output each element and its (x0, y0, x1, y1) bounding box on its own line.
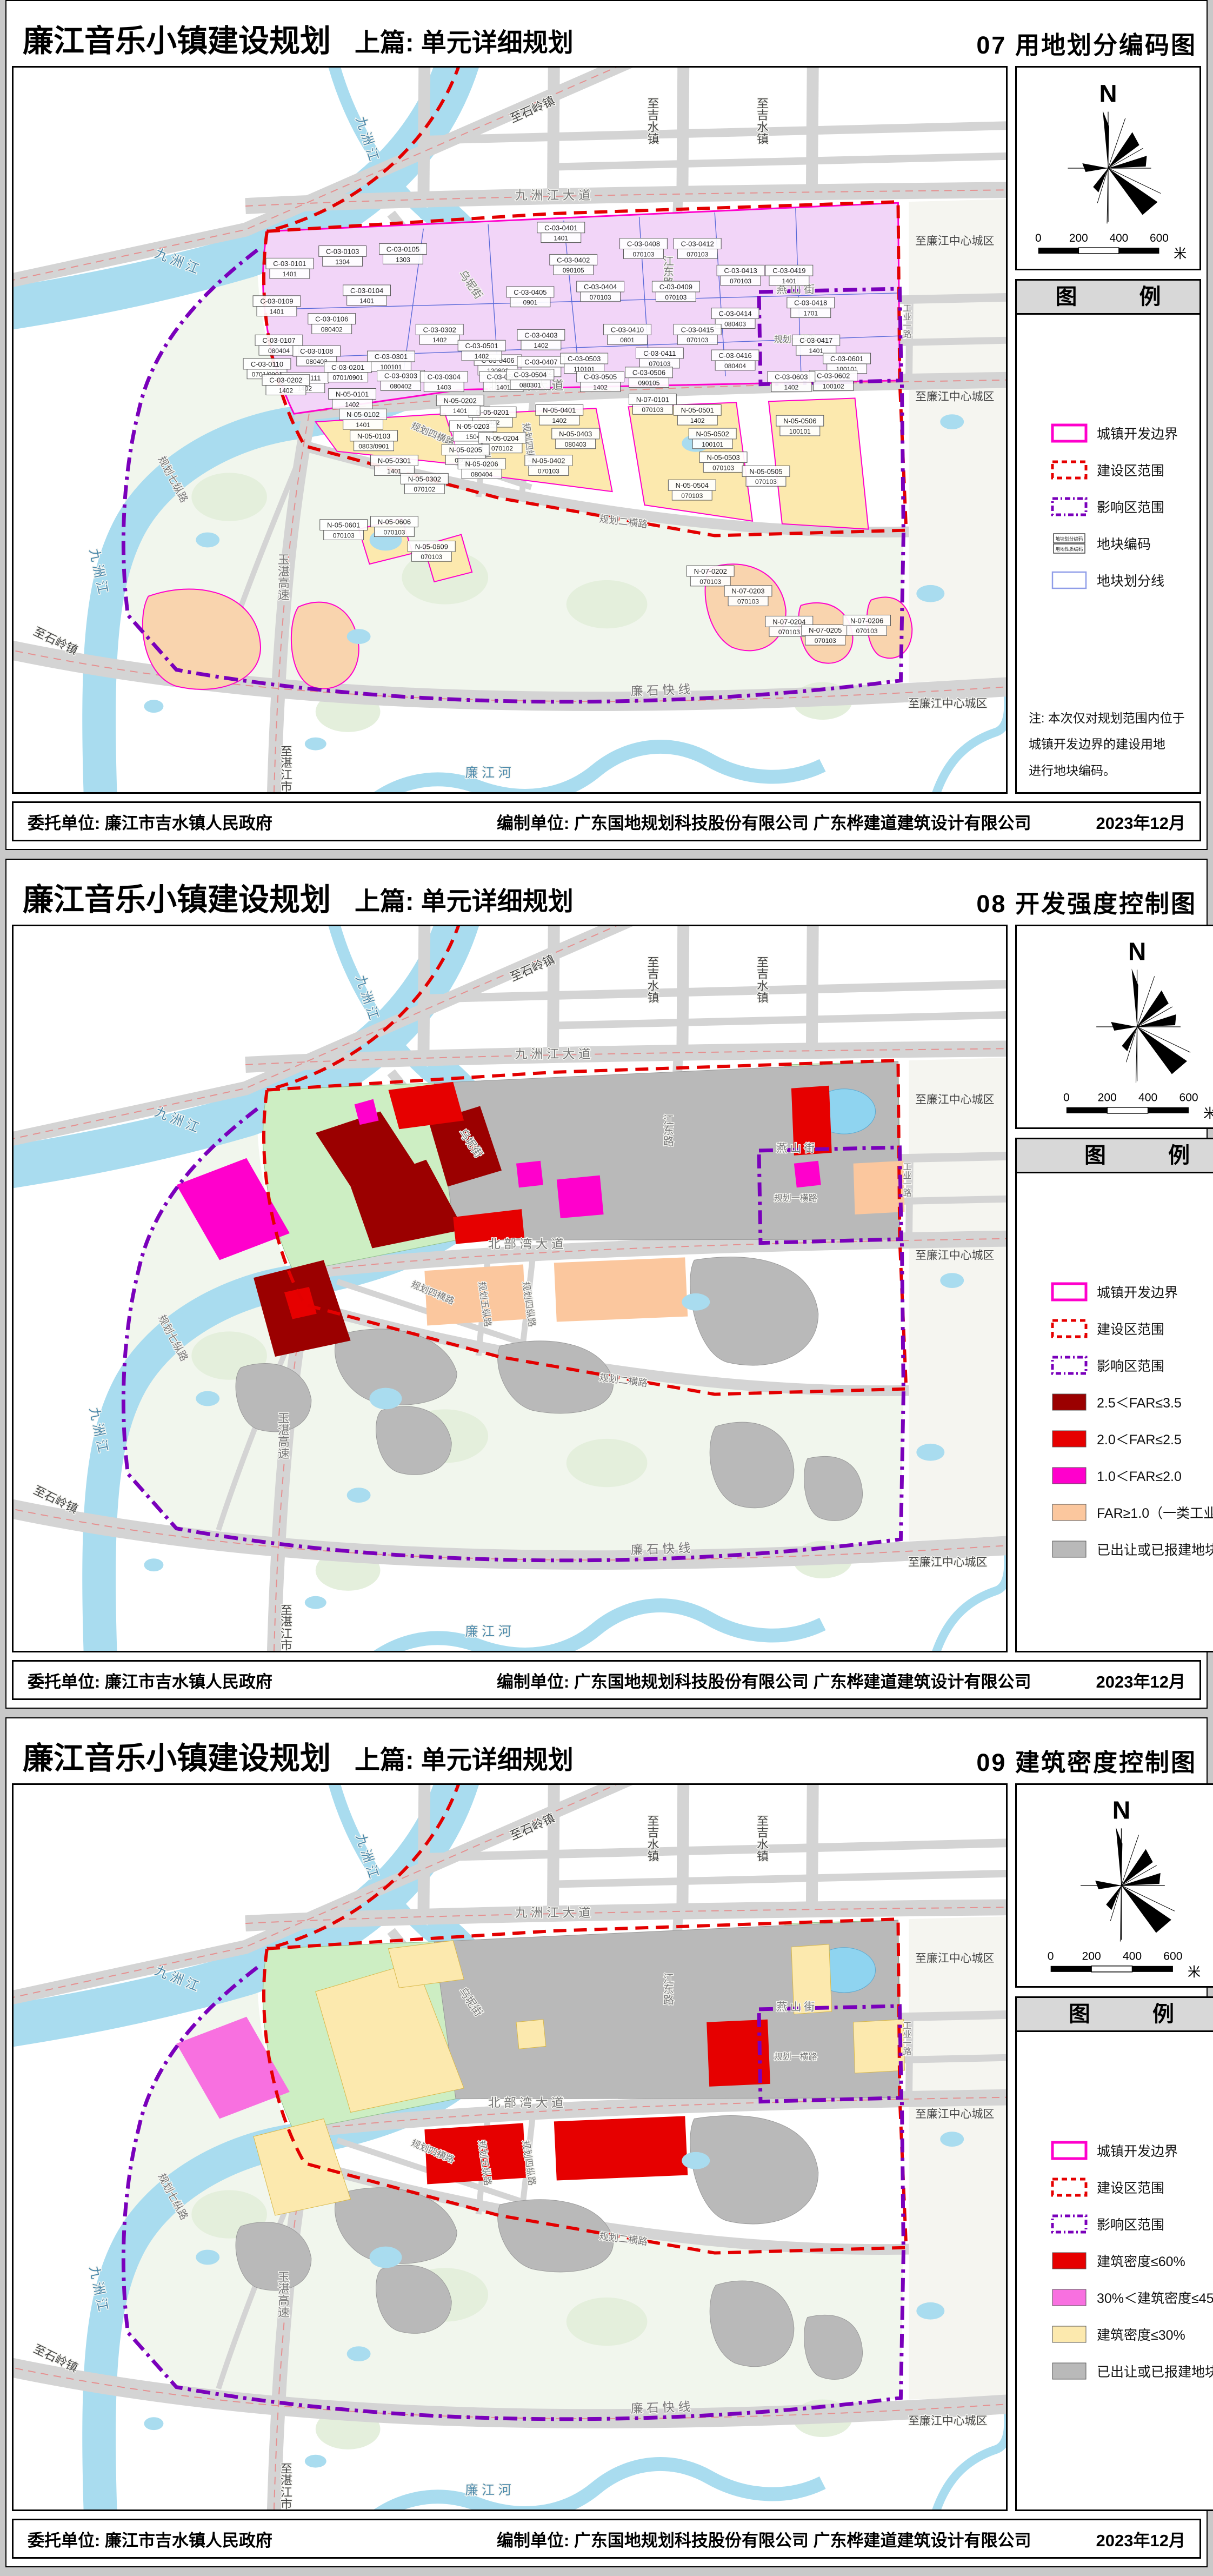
planning-map-09: 九 洲 江九 洲 江九 洲 江廉 江 河九 洲 江 大 道北 部 湾 大 道廉 … (14, 1785, 1006, 2509)
page-title: 廉江音乐小镇建设规划上篇: 单元详细规划 (23, 875, 574, 919)
svg-text:玉湛高速: 玉湛高速 (276, 2270, 290, 2318)
svg-text:070103: 070103 (642, 406, 663, 414)
planning-map-07: 九 洲 江九 洲 江九 洲 江廉 江 河九 洲 江 大 道北 部 湾 大 道廉 … (14, 68, 1006, 792)
svg-text:1401: 1401 (809, 347, 823, 355)
svg-text:N-05-0206: N-05-0206 (465, 460, 498, 468)
legend-swatch-icon (1050, 495, 1088, 519)
svg-text:工业一路: 工业一路 (902, 304, 911, 338)
svg-text:廉 石 快 线: 廉 石 快 线 (630, 1541, 691, 1557)
parcel-code: C-03-04100801 (604, 324, 651, 344)
parcel-code: C-03-02010701/0901 (324, 362, 372, 382)
legend-label: FAR≥1.0（一类工业用地） (1097, 1503, 1213, 1522)
parcel-code: C-03-03041403 (420, 371, 468, 392)
sheet-name: 用地划分编码图 (1015, 31, 1197, 59)
svg-text:1701: 1701 (803, 310, 818, 317)
svg-text:200: 200 (1082, 1950, 1101, 1963)
svg-text:070103: 070103 (737, 598, 759, 606)
sheet-number: 08 (976, 890, 1007, 918)
svg-text:0801: 0801 (620, 336, 635, 344)
svg-text:C-03-0416: C-03-0416 (718, 351, 751, 360)
svg-text:至廉江中心城区: 至廉江中心城区 (915, 1094, 995, 1106)
wind-rose-icon: N0200400600米 (1017, 926, 1213, 1127)
svg-text:070103: 070103 (755, 478, 777, 486)
svg-text:C-03-0402: C-03-0402 (557, 256, 590, 264)
svg-text:1402: 1402 (690, 417, 705, 424)
svg-text:N-07-0203: N-07-0203 (731, 587, 764, 595)
svg-text:080403: 080403 (724, 320, 746, 328)
svg-text:1401: 1401 (356, 421, 370, 429)
svg-text:070103: 070103 (590, 294, 611, 301)
svg-text:C-03-0407: C-03-0407 (524, 358, 557, 366)
svg-text:070103: 070103 (856, 627, 878, 635)
svg-text:070103: 070103 (778, 628, 800, 636)
parcel-code: N-05-04011402 (536, 404, 583, 425)
parcel-code: C-03-0602100102 (810, 370, 857, 391)
svg-text:N-05-0402: N-05-0402 (532, 457, 565, 465)
svg-text:1403: 1403 (437, 384, 451, 391)
svg-text:用地性质编码: 用地性质编码 (1055, 547, 1083, 552)
svg-text:至吉水镇: 至吉水镇 (755, 1815, 769, 1862)
legend-swatch-icon (1050, 1427, 1088, 1451)
parcel-code: N-05-0206080404 (458, 459, 505, 479)
svg-text:600: 600 (1179, 1092, 1198, 1104)
svg-text:C-03-0403: C-03-0403 (524, 331, 557, 339)
svg-text:C-03-0303: C-03-0303 (384, 372, 417, 380)
svg-text:070103: 070103 (665, 294, 687, 301)
svg-text:1401: 1401 (554, 235, 568, 242)
legend-item: 地块划分线 (1050, 562, 1199, 599)
legend-label: 建筑密度≤30% (1097, 2325, 1185, 2344)
svg-text:北 部 湾 大 道: 北 部 湾 大 道 (488, 1237, 564, 1251)
svg-text:090105: 090105 (638, 380, 659, 387)
svg-text:070103: 070103 (649, 360, 670, 368)
svg-text:070102: 070102 (414, 486, 435, 493)
parcel-code: N-05-02021401 (436, 395, 484, 415)
svg-text:070103: 070103 (687, 250, 708, 258)
svg-text:至吉水镇: 至吉水镇 (755, 97, 769, 145)
legend-items: 城镇开发边界建设区范围影响区范围2.5＜FAR≤3.52.0＜FAR≤2.51.… (1017, 1173, 1213, 1568)
legend-title: 图 例 (1017, 1139, 1213, 1173)
legend-swatch-icon (1050, 1317, 1088, 1340)
legend-item: 建设区范围 (1050, 2169, 1213, 2206)
svg-text:N-05-0103: N-05-0103 (357, 432, 390, 440)
legend-item: 建筑密度≤30% (1050, 2316, 1213, 2353)
legend-box-09: 图 例 城镇开发边界建设区范围影响区范围建筑密度≤60%30%＜建筑密度≤45%… (1015, 1996, 1213, 2511)
legend-swatch-icon (1050, 2212, 1088, 2236)
parcel-code: N-05-0609070103 (408, 541, 455, 561)
parcel-code: C-03-04171401 (792, 335, 840, 355)
svg-text:100102: 100102 (823, 383, 844, 390)
parcel-code: C-03-0402090105 (550, 254, 597, 275)
svg-text:1401: 1401 (359, 297, 374, 305)
sheet-number: 09 (976, 1749, 1007, 1776)
svg-text:080403: 080403 (565, 441, 586, 448)
svg-text:C-03-0108: C-03-0108 (300, 347, 333, 355)
svg-text:至廉江中心城区: 至廉江中心城区 (915, 235, 995, 248)
legend-label: 城镇开发边界 (1097, 2141, 1178, 2160)
svg-text:C-03-0419: C-03-0419 (772, 267, 805, 275)
svg-text:C-03-0601: C-03-0601 (830, 355, 863, 363)
svg-text:080404: 080404 (268, 347, 290, 355)
svg-text:N-07-0202: N-07-0202 (694, 567, 727, 575)
parcel-code: N-07-0203070103 (724, 586, 772, 606)
parcel-code: C-03-0506090105 (625, 367, 673, 388)
svg-text:1401: 1401 (283, 270, 297, 278)
svg-text:1402: 1402 (534, 342, 549, 349)
legend-item: 城镇开发边界 (1050, 1273, 1213, 1310)
svg-text:070103: 070103 (681, 492, 703, 500)
parcel-code: C-03-0413070103 (717, 265, 764, 286)
svg-text:C-03-0302: C-03-0302 (423, 326, 456, 334)
svg-text:N-05-0503: N-05-0503 (707, 454, 740, 462)
legend-label: 2.0＜FAR≤2.5 (1097, 1429, 1182, 1449)
parcel-code: N-05-01030803/0901 (350, 430, 398, 451)
legend-item: 城镇开发边界 (1050, 415, 1199, 452)
legend-label: 影响区范围 (1097, 497, 1164, 516)
parcel-code: C-03-06031402 (768, 371, 815, 392)
legend-items: 城镇开发边界建设区范围影响区范围建筑密度≤60%30%＜建筑密度≤45%建筑密度… (1017, 2032, 1213, 2389)
legend-swatch-icon (1050, 421, 1088, 445)
svg-text:070103: 070103 (815, 637, 836, 645)
plan-subtitle: 上篇: 单元详细规划 (355, 1745, 574, 1774)
parcel-code: N-05-01011402 (329, 389, 376, 409)
svg-text:N-05-0102: N-05-0102 (346, 410, 379, 419)
svg-text:1401: 1401 (453, 407, 468, 415)
svg-text:C-03-0415: C-03-0415 (681, 326, 714, 334)
svg-text:070103: 070103 (421, 553, 442, 561)
legend-item: FAR≥1.0（一类工业用地） (1050, 1494, 1213, 1531)
parcel-code: N-05-01021401 (339, 409, 387, 429)
svg-text:至廉江中心城区: 至廉江中心城区 (915, 2108, 995, 2120)
svg-text:N-07-0205: N-07-0205 (809, 626, 842, 634)
svg-text:C-03-0401: C-03-0401 (544, 224, 577, 232)
legend-item: 30%＜建筑密度≤45% (1050, 2279, 1213, 2316)
legend-box-07: 图 例 城镇开发边界建设区范围影响区范围地块划分编码用地性质编码地块编码地块划分… (1015, 279, 1201, 794)
svg-text:C-03-0409: C-03-0409 (659, 283, 692, 291)
svg-text:九 洲 江 大 道: 九 洲 江 大 道 (515, 1047, 591, 1061)
sheet-name: 建筑密度控制图 (1015, 1749, 1197, 1776)
svg-text:N-05-0506: N-05-0506 (783, 417, 816, 425)
svg-text:C-03-0202: C-03-0202 (269, 376, 302, 384)
svg-text:C-03-0304: C-03-0304 (428, 373, 461, 381)
svg-text:200: 200 (1098, 1092, 1117, 1104)
svg-text:090105: 090105 (563, 267, 584, 274)
svg-text:N-05-0401: N-05-0401 (543, 406, 576, 414)
svg-text:1402: 1402 (552, 417, 566, 424)
svg-text:C-03-0602: C-03-0602 (817, 372, 850, 380)
svg-text:200: 200 (1069, 232, 1088, 244)
svg-text:C-03-0504: C-03-0504 (514, 371, 546, 379)
svg-text:N-05-0505: N-05-0505 (749, 467, 782, 475)
svg-text:C-03-0418: C-03-0418 (794, 299, 827, 307)
svg-text:0803/0901: 0803/0901 (358, 443, 389, 450)
parcel-code: N-05-0302070102 (401, 473, 448, 494)
svg-text:0: 0 (1035, 232, 1042, 244)
legend-label: 30%＜建筑密度≤45% (1097, 2288, 1213, 2307)
svg-text:100101: 100101 (702, 441, 723, 448)
sheet-09: 廉江音乐小镇建设规划上篇: 单元详细规划 09 建筑密度控制图 九 洲 江九 洲… (5, 1717, 1208, 2567)
svg-text:N-05-0302: N-05-0302 (408, 475, 441, 483)
parcel-code: N-05-0505070103 (742, 466, 790, 487)
svg-text:C-03-0405: C-03-0405 (514, 288, 546, 296)
parcel-code: C-03-0416080404 (711, 350, 759, 370)
parcel-code: N-05-0506100101 (776, 415, 824, 436)
sheet-07: 廉江音乐小镇建设规划上篇: 单元详细规划 07 用地划分编码图 九 洲 江九 洲… (5, 0, 1208, 850)
parcel-code: C-03-01091401 (253, 296, 301, 316)
svg-text:至吉水镇: 至吉水镇 (646, 97, 659, 145)
parcel-code: C-03-0301100101 (368, 351, 415, 371)
svg-text:0701/0901: 0701/0901 (332, 374, 363, 382)
svg-text:N-05-0609: N-05-0609 (415, 542, 448, 550)
wind-rose-icon: N0200400600米 (1017, 1785, 1213, 1986)
svg-text:100101: 100101 (789, 428, 811, 435)
parcel-code: C-03-0408070103 (620, 238, 668, 259)
parcel-code: N-05-0502100101 (689, 428, 736, 449)
sheet-title: 08 开发强度控制图 (976, 884, 1197, 919)
legend-swatch-icon (1050, 2139, 1088, 2162)
legend-item: 2.0＜FAR≤2.5 (1050, 1420, 1213, 1457)
parcel-code: N-05-03011401 (371, 455, 418, 476)
planning-map-08: 九 洲 江九 洲 江九 洲 江廉 江 河九 洲 江 大 道北 部 湾 大 道廉 … (14, 926, 1006, 1651)
legend-swatch-icon: 地块划分编码用地性质编码 (1050, 532, 1088, 555)
svg-text:0: 0 (1048, 1950, 1054, 1963)
legend-swatch-icon (1050, 1537, 1088, 1561)
legend-label: 城镇开发边界 (1097, 423, 1178, 443)
svg-text:600: 600 (1163, 1950, 1182, 1963)
svg-text:N-05-0101: N-05-0101 (336, 390, 369, 398)
svg-text:N-05-0502: N-05-0502 (696, 430, 729, 438)
legend-item: 建筑密度≤60% (1050, 2242, 1213, 2279)
svg-text:C-03-0414: C-03-0414 (718, 310, 751, 318)
preparer-label: 编制单位: 广东国地规划科技股份有限公司 广东桦建道建筑设计有限公司 (497, 809, 1031, 834)
svg-text:廉 江 河: 廉 江 河 (465, 1624, 511, 1639)
page-title: 廉江音乐小镇建设规划上篇: 单元详细规划 (23, 1734, 574, 1778)
parcel-code: N-07-0202070103 (687, 566, 734, 586)
plan-subtitle: 上篇: 单元详细规划 (355, 887, 574, 915)
parcel-code: N-05-0402070103 (525, 455, 572, 476)
parcel-code: C-03-0303080402 (377, 370, 425, 391)
svg-text:400: 400 (1109, 232, 1128, 244)
map-note: 注: 本次仅对规划范围内位于城镇开发边界的建设用地进行地块编码。 (1029, 705, 1194, 784)
svg-text:C-03-0105: C-03-0105 (386, 245, 419, 253)
client-label: 委托单位: 廉江市吉水镇人民政府 (28, 1668, 497, 1692)
legend-swatch-icon (1050, 1353, 1088, 1377)
parcel-code: N-07-0101070103 (629, 394, 677, 414)
svg-text:N-05-0403: N-05-0403 (559, 430, 592, 438)
parcel-code: C-03-0503110101 (561, 353, 608, 374)
legend-swatch-icon (1050, 1390, 1088, 1414)
svg-text:070103: 070103 (333, 532, 355, 540)
legend-label: 城镇开发边界 (1097, 1282, 1178, 1302)
svg-text:地块划分编码: 地块划分编码 (1055, 536, 1083, 542)
svg-text:0: 0 (1063, 1092, 1070, 1104)
svg-text:080402: 080402 (321, 326, 343, 333)
title-block-08: 委托单位: 廉江市吉水镇人民政府 编制单位: 广东国地规划科技股份有限公司 广东… (12, 1660, 1201, 1700)
svg-text:至吉水镇: 至吉水镇 (646, 1815, 659, 1862)
map-frame-08: 九 洲 江九 洲 江九 洲 江廉 江 河九 洲 江 大 道北 部 湾 大 道廉 … (12, 925, 1008, 1652)
svg-text:1402: 1402 (345, 401, 359, 408)
svg-text:廉 石 快 线: 廉 石 快 线 (630, 2399, 691, 2415)
svg-text:工业一路: 工业一路 (902, 2021, 911, 2056)
sheet-title: 09 建筑密度控制图 (976, 1743, 1197, 1778)
svg-text:N-05-0201: N-05-0201 (476, 408, 509, 416)
parcel-code: C-03-0106080402 (308, 314, 356, 334)
wind-rose-icon: N0200400600米 (1017, 68, 1199, 269)
legend-label: 影响区范围 (1097, 2214, 1164, 2234)
svg-text:工业一路: 工业一路 (902, 1163, 911, 1197)
svg-text:070103: 070103 (730, 277, 751, 285)
svg-text:N-07-0204: N-07-0204 (772, 618, 805, 626)
svg-text:C-03-0501: C-03-0501 (465, 342, 498, 350)
date-label: 2023年12月 (1096, 2527, 1185, 2551)
legend-item: 地块划分编码用地性质编码地块编码 (1050, 525, 1199, 562)
svg-text:C-03-0503: C-03-0503 (568, 355, 601, 363)
svg-text:N-07-0101: N-07-0101 (636, 395, 669, 403)
sheet-name: 开发强度控制图 (1015, 890, 1197, 918)
svg-text:米: 米 (1203, 1106, 1213, 1121)
svg-text:廉 石 快 线: 廉 石 快 线 (630, 682, 691, 698)
legend-swatch-icon (1050, 2286, 1088, 2309)
svg-text:070103: 070103 (632, 250, 654, 258)
svg-text:规划一横路: 规划一横路 (774, 1193, 817, 1203)
title-block-07: 委托单位: 廉江市吉水镇人民政府 编制单位: 广东国地规划科技股份有限公司 广东… (12, 801, 1201, 841)
svg-text:C-03-0110: C-03-0110 (251, 360, 283, 368)
legend-swatch-icon (1050, 2249, 1088, 2273)
legend-item: 已出让或已报建地块 (1050, 1531, 1213, 1568)
svg-text:九 洲 江 大 道: 九 洲 江 大 道 (515, 188, 591, 202)
svg-text:C-03-0410: C-03-0410 (611, 326, 644, 334)
svg-text:江东路: 江东路 (661, 1114, 674, 1146)
north-label: N (1128, 937, 1146, 965)
svg-text:C-03-0103: C-03-0103 (326, 247, 359, 255)
svg-text:C-03-0101: C-03-0101 (273, 260, 306, 268)
legend-label: 地块划分线 (1097, 570, 1164, 590)
parcel-code: C-03-0411070103 (636, 348, 683, 368)
parcel-code: N-07-0206070103 (843, 615, 891, 635)
svg-text:070103: 070103 (538, 467, 559, 475)
compass-box: N0200400600米 (1015, 1783, 1213, 1988)
parcel-code: C-03-0409070103 (652, 281, 699, 302)
parcel-code: C-03-0415070103 (674, 324, 721, 344)
preparer-label: 编制单位: 广东国地规划科技股份有限公司 广东桦建道建筑设计有限公司 (497, 1668, 1031, 1692)
date-label: 2023年12月 (1096, 809, 1185, 834)
svg-text:廉 江 河: 廉 江 河 (465, 2483, 511, 2498)
parcel-code: N-05-0403080403 (552, 428, 599, 449)
svg-text:C-03-0412: C-03-0412 (681, 240, 714, 248)
legend-swatch-icon (1050, 1501, 1088, 1524)
legend-item: 影响区范围 (1050, 488, 1199, 525)
svg-text:C-03-0417: C-03-0417 (799, 336, 832, 344)
parcel-code: C-03-05051402 (577, 371, 624, 392)
svg-text:N-05-0204: N-05-0204 (485, 434, 518, 442)
svg-text:米: 米 (1188, 1965, 1201, 1980)
svg-text:400: 400 (1138, 1092, 1157, 1104)
legend-swatch-icon (1050, 458, 1088, 482)
parcel-code: C-03-05011402 (458, 340, 505, 361)
svg-text:1401: 1401 (782, 277, 797, 285)
legend-box-08: 图 例 城镇开发边界建设区范围影响区范围2.5＜FAR≤3.52.0＜FAR≤2… (1015, 1138, 1213, 1652)
svg-text:C-03-0404: C-03-0404 (584, 283, 617, 291)
plan-subtitle: 上篇: 单元详细规划 (355, 28, 574, 57)
legend-label: 影响区范围 (1097, 1356, 1164, 1375)
legend-swatch-icon (1050, 1280, 1088, 1304)
parcel-code: C-03-01031304 (319, 246, 366, 267)
svg-text:N-05-0601: N-05-0601 (327, 521, 360, 529)
parcel-code: N-05-0504070103 (668, 480, 716, 500)
legend-title: 图 例 (1017, 1998, 1213, 2032)
parcel-code: C-03-04031402 (517, 329, 565, 350)
parcel-code: C-03-01011401 (266, 258, 314, 278)
svg-text:至湛江市: 至湛江市 (279, 2462, 292, 2509)
parcel-code: C-03-0404070103 (577, 281, 624, 302)
legend-label: 建筑密度≤60% (1097, 2251, 1185, 2270)
parcel-code: N-07-0205070103 (802, 625, 849, 645)
parcel-code: N-05-0601070103 (320, 520, 368, 540)
svg-text:N-05-0203: N-05-0203 (457, 422, 490, 430)
svg-text:1402: 1402 (593, 384, 608, 391)
svg-text:C-03-0411: C-03-0411 (643, 349, 676, 357)
legend-label: 建设区范围 (1097, 1319, 1164, 1338)
sheet-number: 07 (976, 31, 1007, 59)
legend-item: 影响区范围 (1050, 1347, 1213, 1384)
svg-text:1402: 1402 (784, 384, 799, 391)
plan-title: 廉江音乐小镇建设规划 (23, 24, 331, 58)
legend-item: 已出让或已报建地块 (1050, 2353, 1213, 2389)
svg-text:玉湛高速: 玉湛高速 (276, 1412, 290, 1459)
svg-text:070103: 070103 (687, 336, 708, 344)
svg-text:燕 山 街: 燕 山 街 (776, 1142, 815, 1154)
sheet-09-header: 廉江音乐小镇建设规划上篇: 单元详细规划 09 建筑密度控制图 (12, 1722, 1201, 1783)
plan-title: 廉江音乐小镇建设规划 (23, 1741, 331, 1776)
svg-text:江东路: 江东路 (661, 1973, 674, 2005)
svg-text:至吉水镇: 至吉水镇 (646, 956, 659, 1004)
client-label: 委托单位: 廉江市吉水镇人民政府 (28, 809, 497, 834)
svg-text:至廉江中心城区: 至廉江中心城区 (908, 1556, 988, 1569)
svg-text:C-03-0107: C-03-0107 (262, 336, 295, 344)
svg-text:至湛江市: 至湛江市 (279, 1604, 292, 1651)
svg-text:080301: 080301 (519, 382, 541, 389)
svg-text:规划一横路: 规划一横路 (774, 2052, 817, 2062)
svg-text:N-05-0504: N-05-0504 (676, 481, 709, 489)
legend-item: 城镇开发边界 (1050, 2132, 1213, 2169)
parcel-code: N-05-0503070103 (699, 452, 747, 473)
legend-label: 建设区范围 (1097, 460, 1164, 480)
svg-text:070103: 070103 (383, 529, 405, 536)
date-label: 2023年12月 (1096, 1668, 1185, 1692)
svg-text:C-03-0104: C-03-0104 (350, 287, 383, 295)
sheet-title: 07 用地划分编码图 (976, 25, 1197, 61)
legend-label: 1.0＜FAR≤2.0 (1097, 1466, 1182, 1485)
compass-box: N0200400600米 (1015, 925, 1213, 1129)
legend-swatch-icon (1050, 568, 1088, 592)
parcel-code: C-03-04181701 (787, 297, 835, 318)
parcel-code: N-05-05011402 (674, 404, 721, 425)
legend-item: 影响区范围 (1050, 2206, 1213, 2242)
svg-text:九 洲 江 大 道: 九 洲 江 大 道 (515, 1906, 591, 1920)
legend-swatch-icon (1050, 2175, 1088, 2199)
legend-title: 图 例 (1017, 281, 1199, 315)
parcel-code: C-03-04011401 (537, 222, 585, 243)
svg-text:至廉江中心城区: 至廉江中心城区 (915, 1953, 995, 1965)
svg-text:C-03-0109: C-03-0109 (260, 297, 293, 306)
svg-text:080404: 080404 (471, 470, 492, 478)
svg-text:C-03-0603: C-03-0603 (775, 373, 808, 381)
plan-title: 廉江音乐小镇建设规划 (23, 882, 331, 917)
legend-label: 已出让或已报建地块 (1097, 1539, 1213, 1559)
parcel-code: N-05-0606070103 (371, 516, 418, 537)
svg-text:至廉江中心城区: 至廉江中心城区 (915, 1249, 995, 1262)
svg-text:玉湛高速: 玉湛高速 (276, 553, 290, 601)
